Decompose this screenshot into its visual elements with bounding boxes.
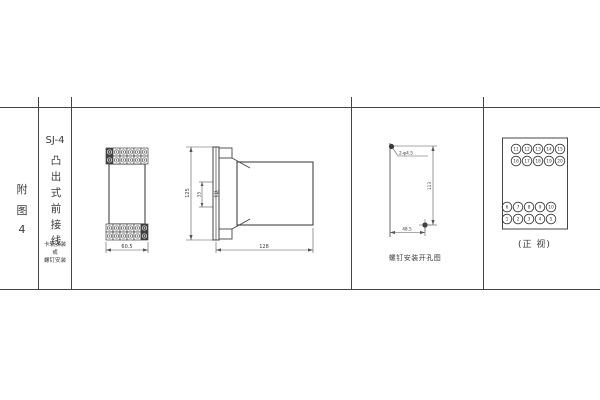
screw-slot-icon bbox=[144, 235, 145, 236]
front-view-body bbox=[109, 164, 145, 224]
screw-slot-icon bbox=[123, 227, 124, 228]
side-view-top-tab bbox=[219, 148, 232, 158]
hole-spec-leader bbox=[393, 149, 398, 157]
dim-arrow bbox=[308, 248, 313, 251]
terminal-number: 4 bbox=[539, 217, 542, 223]
terminal-number: 6 bbox=[506, 205, 509, 211]
terminal-number: 16 bbox=[513, 159, 519, 165]
terminal-screw-blocks bbox=[106, 148, 148, 240]
terminal-view-drawing: 1112131415161718192067891012345 (正 视) bbox=[502, 138, 567, 250]
drill-view-caption: 螺钉安装开孔图 bbox=[389, 253, 442, 262]
screw-slot-icon bbox=[109, 235, 110, 236]
screw-slot-icon bbox=[144, 159, 145, 160]
screw-slot-icon bbox=[123, 235, 124, 236]
screw-slot-icon bbox=[109, 159, 110, 160]
diagram-canvas: 60.5 125 bbox=[0, 0, 600, 400]
stacked-char: 4 bbox=[19, 223, 26, 236]
terminal-number: 19 bbox=[546, 159, 552, 165]
model-label: SJ-4 bbox=[37, 135, 73, 146]
screw-slot-icon bbox=[116, 227, 117, 228]
terminal-number-circles: 1112131415161718192067891012345 bbox=[502, 144, 565, 224]
side-depth-dim-label: 128 bbox=[259, 244, 269, 250]
side-view-case-body bbox=[237, 162, 313, 225]
stacked-char: 接 bbox=[51, 217, 62, 232]
screw-slot-icon bbox=[137, 151, 138, 152]
figure-number-label: 附图4 bbox=[10, 181, 34, 236]
mounting-note-line: 或 bbox=[38, 249, 72, 257]
screw-slot-icon bbox=[137, 235, 138, 236]
front-view-drawing: 60.5 bbox=[106, 148, 148, 253]
drill-view-drawing: 2-φ4.5 113 48.5 螺钉安装开孔图 bbox=[389, 143, 442, 262]
terminal-number: 7 bbox=[517, 205, 520, 211]
screw-slot-icon bbox=[144, 227, 145, 228]
terminal-number: 12 bbox=[524, 147, 530, 153]
terminal-number: 1 bbox=[506, 217, 509, 223]
dim-arrow bbox=[189, 147, 192, 152]
side-rail-span-dim-label: 35 bbox=[197, 192, 203, 198]
side-view-top-gusset bbox=[232, 158, 250, 168]
side-view-bottom-tab bbox=[219, 229, 232, 239]
mounting-note-line: 螺钉安装 bbox=[38, 257, 72, 265]
dim-arrow bbox=[390, 231, 395, 234]
dim-arrow bbox=[431, 220, 434, 225]
stacked-char: 式 bbox=[51, 185, 62, 200]
terminal-number: 3 bbox=[528, 217, 531, 223]
mounting-note-line: 卡轨安装 bbox=[38, 241, 72, 249]
screw-slot-icon bbox=[123, 159, 124, 160]
dim-arrow bbox=[143, 248, 148, 251]
stacked-char: 图 bbox=[17, 202, 28, 218]
terminal-number: 13 bbox=[535, 147, 541, 153]
mounting-note: 卡轨安装 或 螺钉安装 bbox=[38, 241, 72, 265]
screw-slot-icon bbox=[116, 159, 117, 160]
terminal-number: 20 bbox=[557, 159, 563, 165]
screw-slot-icon bbox=[109, 227, 110, 228]
screw-slot-icon bbox=[130, 159, 131, 160]
dim-arrow bbox=[201, 203, 204, 207]
screw-slot-icon bbox=[130, 151, 131, 152]
terminal-view-caption: (正 视) bbox=[518, 238, 551, 250]
terminal-number: 8 bbox=[528, 205, 531, 211]
stacked-char: 前 bbox=[51, 201, 62, 216]
dim-arrow bbox=[189, 235, 192, 240]
stacked-char: 附 bbox=[17, 181, 28, 197]
side-rail-label: 卡轨 bbox=[213, 190, 220, 199]
stacked-char: 凸 bbox=[51, 153, 62, 168]
screw-slot-icon bbox=[123, 151, 124, 152]
terminal-number: 11 bbox=[513, 147, 519, 153]
sheet-borders bbox=[0, 97, 600, 290]
screw-slot-icon bbox=[137, 159, 138, 160]
side-view-drawing: 125 35 卡轨 128 bbox=[185, 147, 313, 253]
side-view-bottom-gusset bbox=[232, 219, 250, 229]
screw-slot-icon bbox=[116, 151, 117, 152]
terminal-number: 17 bbox=[524, 159, 530, 165]
drill-hole-top bbox=[389, 144, 394, 149]
dim-arrow bbox=[106, 248, 111, 251]
screw-slot-icon bbox=[137, 227, 138, 228]
screw-slot-icon bbox=[130, 227, 131, 228]
terminal-number: 9 bbox=[539, 205, 542, 211]
screw-slot-icon bbox=[130, 235, 131, 236]
terminal-number: 5 bbox=[550, 217, 553, 223]
front-width-dim-label: 60.5 bbox=[121, 244, 132, 250]
mounting-type-label: 凸出式前接线 bbox=[44, 153, 68, 248]
dim-arrow bbox=[216, 248, 221, 251]
terminal-number: 10 bbox=[548, 205, 554, 211]
screw-slot-icon bbox=[109, 151, 110, 152]
screw-slot-icon bbox=[144, 151, 145, 152]
terminal-number: 15 bbox=[557, 147, 563, 153]
side-height-dim-label: 125 bbox=[185, 188, 191, 198]
dim-arrow bbox=[201, 182, 204, 186]
stacked-char: 出 bbox=[51, 169, 62, 184]
dim-arrow bbox=[431, 146, 434, 151]
drill-horizontal-pitch-label: 48.5 bbox=[402, 227, 412, 233]
drawing-sheet: 60.5 125 bbox=[0, 0, 600, 400]
drill-hole-spec-label: 2-φ4.5 bbox=[399, 151, 413, 157]
terminal-number: 18 bbox=[535, 159, 541, 165]
screw-slot-icon bbox=[116, 235, 117, 236]
dim-arrow bbox=[420, 231, 425, 234]
terminal-number: 14 bbox=[546, 147, 552, 153]
drill-vertical-pitch-label: 113 bbox=[427, 182, 433, 190]
terminal-number: 2 bbox=[517, 217, 520, 223]
